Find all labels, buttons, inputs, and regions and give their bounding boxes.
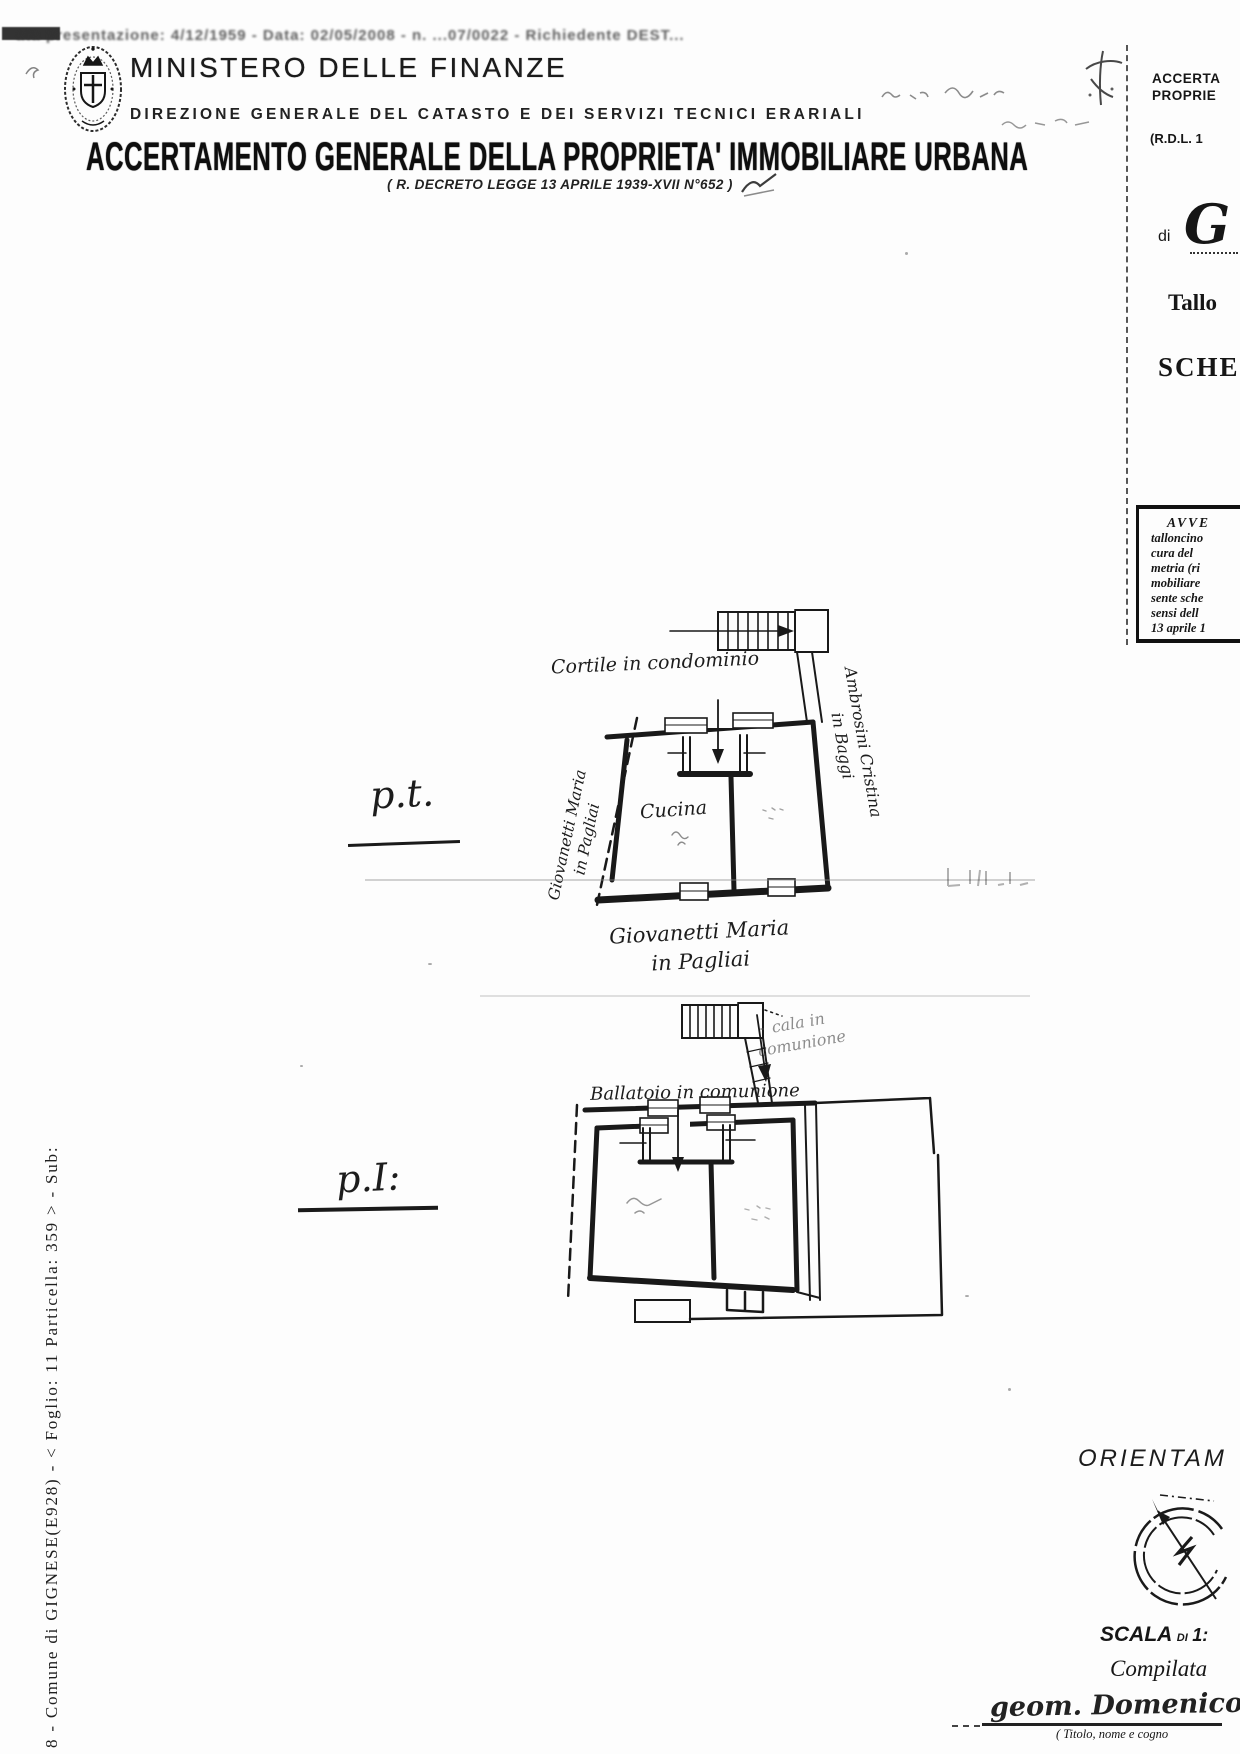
stub-header-line2: PROPRIE [1152,87,1221,104]
notice-title: AVVE [1167,515,1240,531]
faded-stamp-marks [940,858,1040,896]
stub-header-line1: ACCERTA [1152,70,1221,87]
balcony-commons-label: Ballatoio in comunione [575,1080,815,1105]
ground-floor-label-underline [348,840,460,847]
direction-subtitle: DIREZIONE GENERALE DEL CATASTO E DEI SER… [130,106,865,124]
scan-header-artifact: ata presentazione: 4/12/1959 - Data: 02/… [16,27,776,44]
first-floor-label: p.I: [335,1154,401,1201]
notice-line: mobiliare [1151,576,1240,591]
handwritten-scribble-marks [850,45,1140,140]
notice-line: cura del [1151,546,1240,561]
scan-speck [905,252,908,255]
scan-speck [300,1065,303,1067]
ground-floor-label: p.t. [369,770,435,817]
scale-word: SCALA [1100,1623,1172,1646]
stub-scheda-label: SCHE [1158,352,1240,383]
notice-line: 13 aprile 1 [1151,621,1240,636]
notice-line: metria (ri [1151,561,1240,576]
stub-dotted-line [1190,252,1238,254]
scanned-cadastral-document: ata presentazione: 4/12/1959 - Data: 02/… [0,0,1240,1754]
signature-underline [982,1723,1222,1726]
signature-caption: ( Titolo, nome e cogno [1056,1727,1168,1742]
scale-line: SCALA DI 1: [1100,1623,1208,1647]
scale-ratio: 1: [1192,1625,1208,1645]
notice-line: sente sche [1151,591,1240,606]
surveyor-signature: geom. Domenico [990,1688,1240,1723]
page-edge-dashed-line [1126,45,1128,645]
signature-underline-dashes [952,1725,980,1727]
orientation-label: ORIENTAM [1078,1445,1227,1473]
scan-speck [965,1295,969,1297]
scan-fold-line [365,879,1035,881]
scale-di: DI [1177,1632,1188,1644]
stub-talloncino-label: Tallo [1168,290,1217,316]
scan-speck [1008,1388,1011,1391]
bottom-owner-label: Giovanetti Maria in Pagliai [584,912,817,982]
cadastral-reference-margin-text: 8 - Comune di GIGNESE(E928) - < Foglio: … [42,1146,62,1748]
document-title: ACCERTAMENTO GENERALE DELLA PROPRIETA' I… [86,134,1028,180]
first-floor-label-underline [298,1206,438,1212]
notice-line: sensi dell [1151,606,1240,621]
check-scribble [738,170,782,200]
ministry-emblem-stamp-icon [62,43,124,135]
ministry-title: MINISTERO DELLE FINANZE [130,52,567,84]
kitchen-room-label: Cucina [639,797,707,824]
notice-line: talloncino [1151,531,1240,546]
stub-municipality-initial: G [1184,192,1230,256]
scan-speck [428,963,432,965]
scan-speck [760,1028,764,1030]
compass-orientation-icon [1130,1485,1240,1607]
stub-column-header: ACCERTA PROPRIE [1152,70,1221,104]
margin-mark [22,56,44,82]
stub-di-label: di [1158,228,1170,246]
compiled-label: Compilata [1110,1656,1207,1682]
stub-law-reference: (R.D.L. 1 [1150,131,1203,146]
notice-box: AVVE talloncino cura del metria (ri mobi… [1136,505,1240,643]
